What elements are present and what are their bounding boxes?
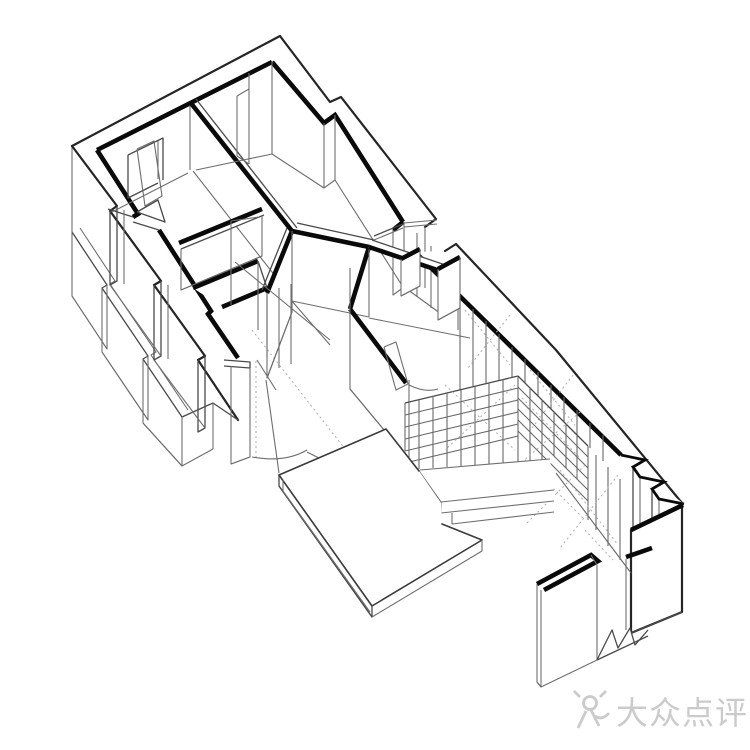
svg-text:大众点评: 大众点评 [616, 695, 748, 731]
